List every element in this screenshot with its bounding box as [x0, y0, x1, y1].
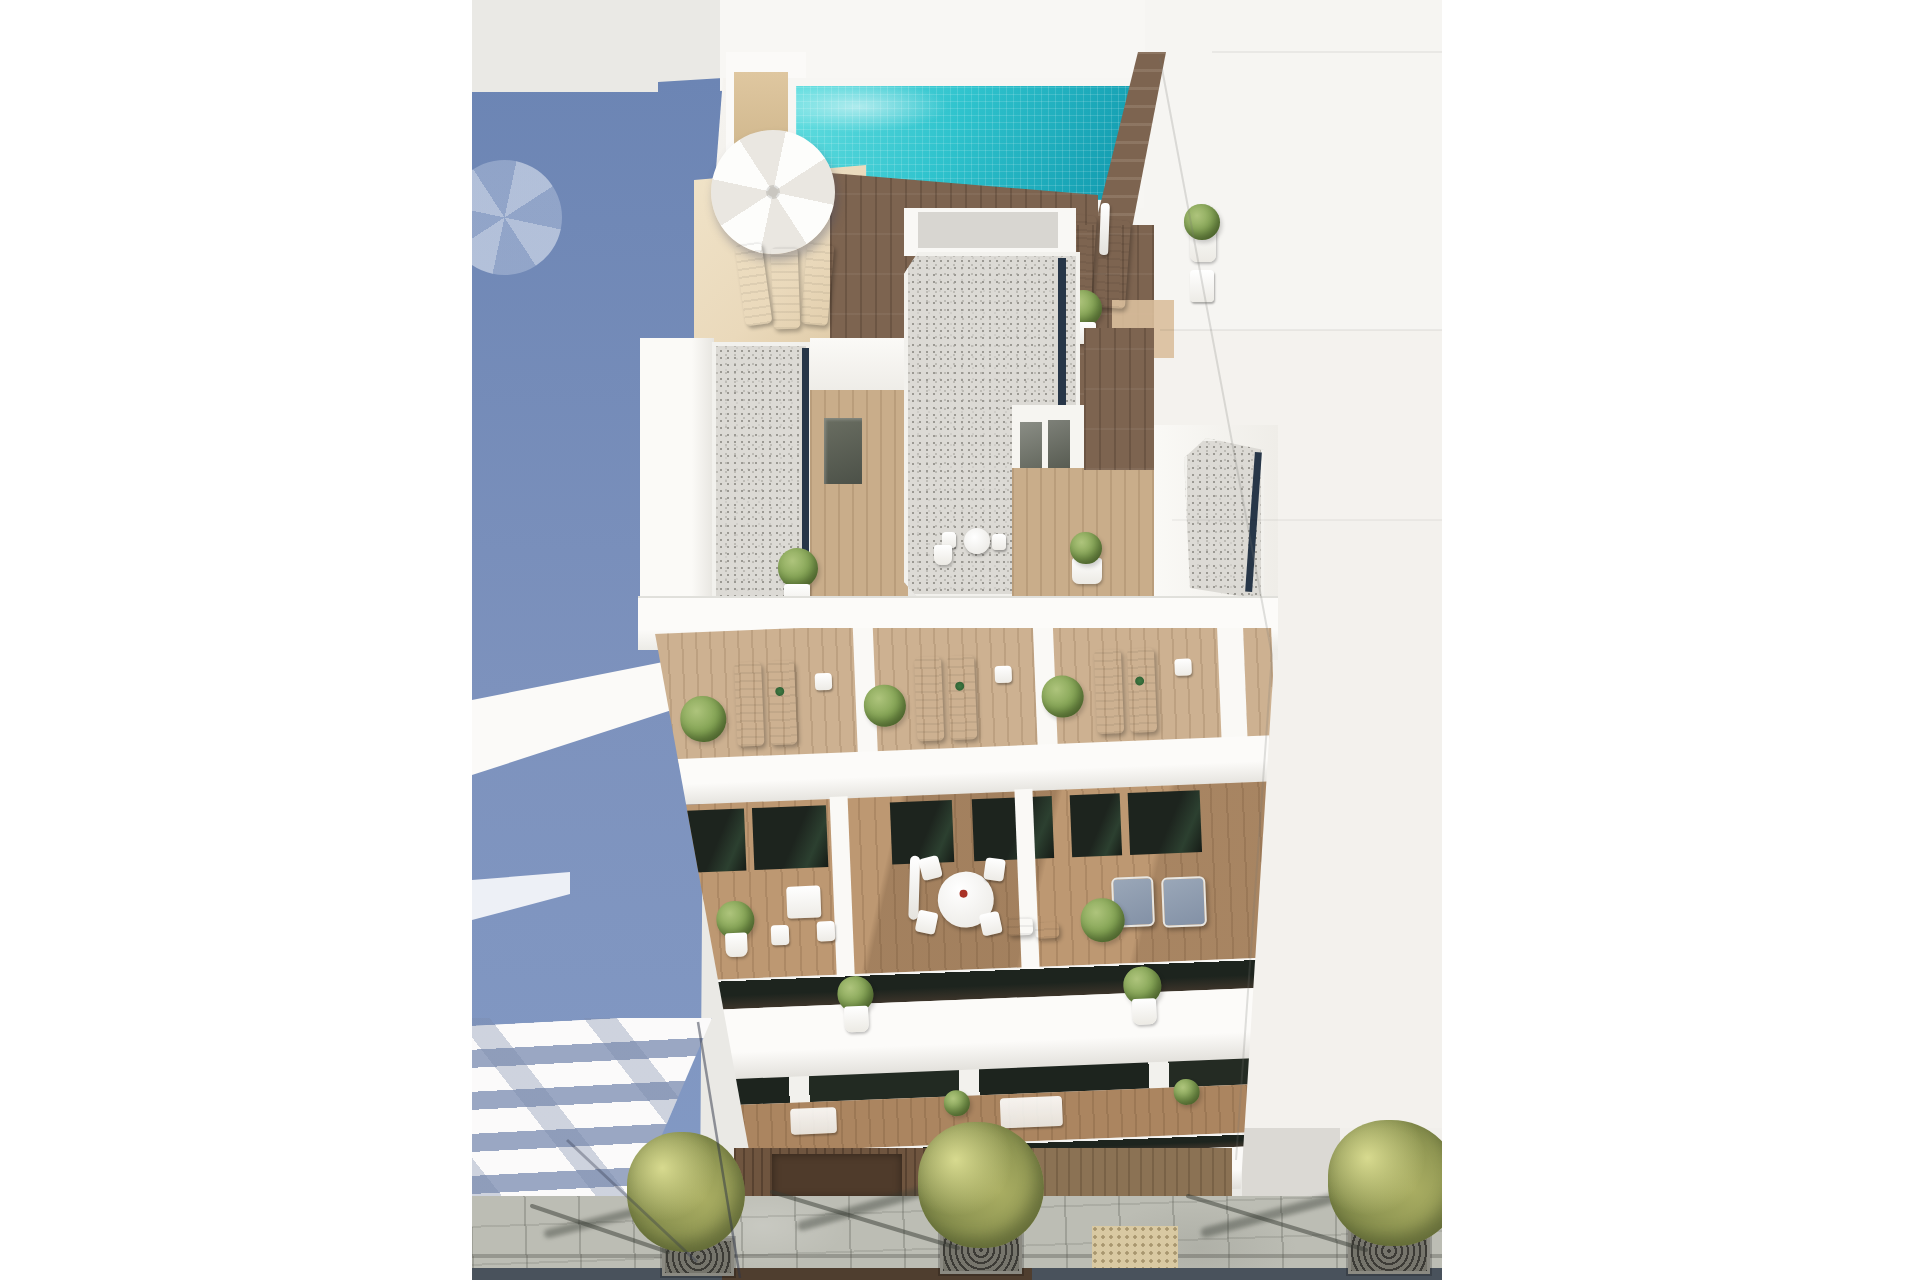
terrace-lounger: [767, 660, 797, 745]
balcony-chair: [983, 857, 1006, 881]
page-margin-left: [0, 0, 472, 1280]
gravel-tower-top-roof: [918, 212, 1058, 248]
balcony-chair: [771, 925, 790, 946]
balcony-b-furniture: [1000, 1096, 1063, 1128]
terrace-partition: [1216, 610, 1247, 743]
balcony-square-table: [786, 885, 821, 918]
balcony-window: [972, 796, 1054, 861]
terrace-side-table: [1174, 658, 1192, 676]
street-tree: [627, 1132, 745, 1252]
slab-pot: [1132, 998, 1157, 1025]
garage-door: [772, 1154, 902, 1198]
balcony-window: [1070, 793, 1122, 857]
balcony-pot: [725, 932, 748, 957]
terrace-round-table: [964, 528, 990, 554]
terrace-chair: [992, 534, 1006, 550]
facade: [600, 628, 1306, 1200]
sun-lounger: [771, 247, 801, 330]
balcony-stool: [1007, 917, 1034, 936]
balcony-b-furniture: [790, 1107, 837, 1135]
tactile-paving: [1092, 1226, 1178, 1268]
terrace-pot: [934, 545, 952, 565]
terrace-plant-bush: [1070, 532, 1102, 564]
terrace-lounger: [734, 662, 764, 747]
terrace-side-table: [815, 673, 833, 691]
page-margin-right: [1442, 0, 1920, 1280]
closed-parasol: [1099, 203, 1110, 255]
balcony-window: [890, 800, 954, 864]
render-image: [472, 0, 1442, 1280]
right-neighbor-base: [1242, 1128, 1342, 1198]
gravel-roof-center-edge: [1058, 258, 1066, 413]
balcony-window: [752, 805, 828, 870]
right-neighbor-roof-upper: [1132, 0, 1442, 330]
terrace-side-table: [994, 666, 1012, 684]
terrace-lounger: [947, 655, 977, 740]
terrace-wall-t1: [810, 338, 908, 392]
terrace-lounger: [914, 656, 944, 741]
terrace-wood-dark-right: [1084, 328, 1154, 470]
street-tree: [918, 1122, 1044, 1248]
roof-chair: [1190, 270, 1214, 302]
roof-planter-bush: [1184, 204, 1220, 240]
balcony-stool: [1035, 922, 1060, 939]
slab-pot: [844, 1006, 869, 1033]
balcony-armchair: [1161, 876, 1207, 928]
balcony-window: [1128, 790, 1202, 855]
terrace-lounger: [1127, 648, 1157, 733]
terrace-door: [1048, 420, 1070, 470]
terrace-lounger: [1094, 649, 1124, 734]
ground-floor-entry: [1032, 1148, 1232, 1198]
terrace-bush: [778, 548, 818, 588]
street-tree: [1328, 1120, 1442, 1246]
render-page: [0, 0, 1920, 1280]
terrace-door: [1020, 422, 1042, 470]
terrace-door: [824, 418, 862, 484]
balcony-chair: [979, 911, 1003, 937]
balcony-chair: [817, 921, 836, 942]
roof-umbrella-pole: [768, 187, 778, 197]
